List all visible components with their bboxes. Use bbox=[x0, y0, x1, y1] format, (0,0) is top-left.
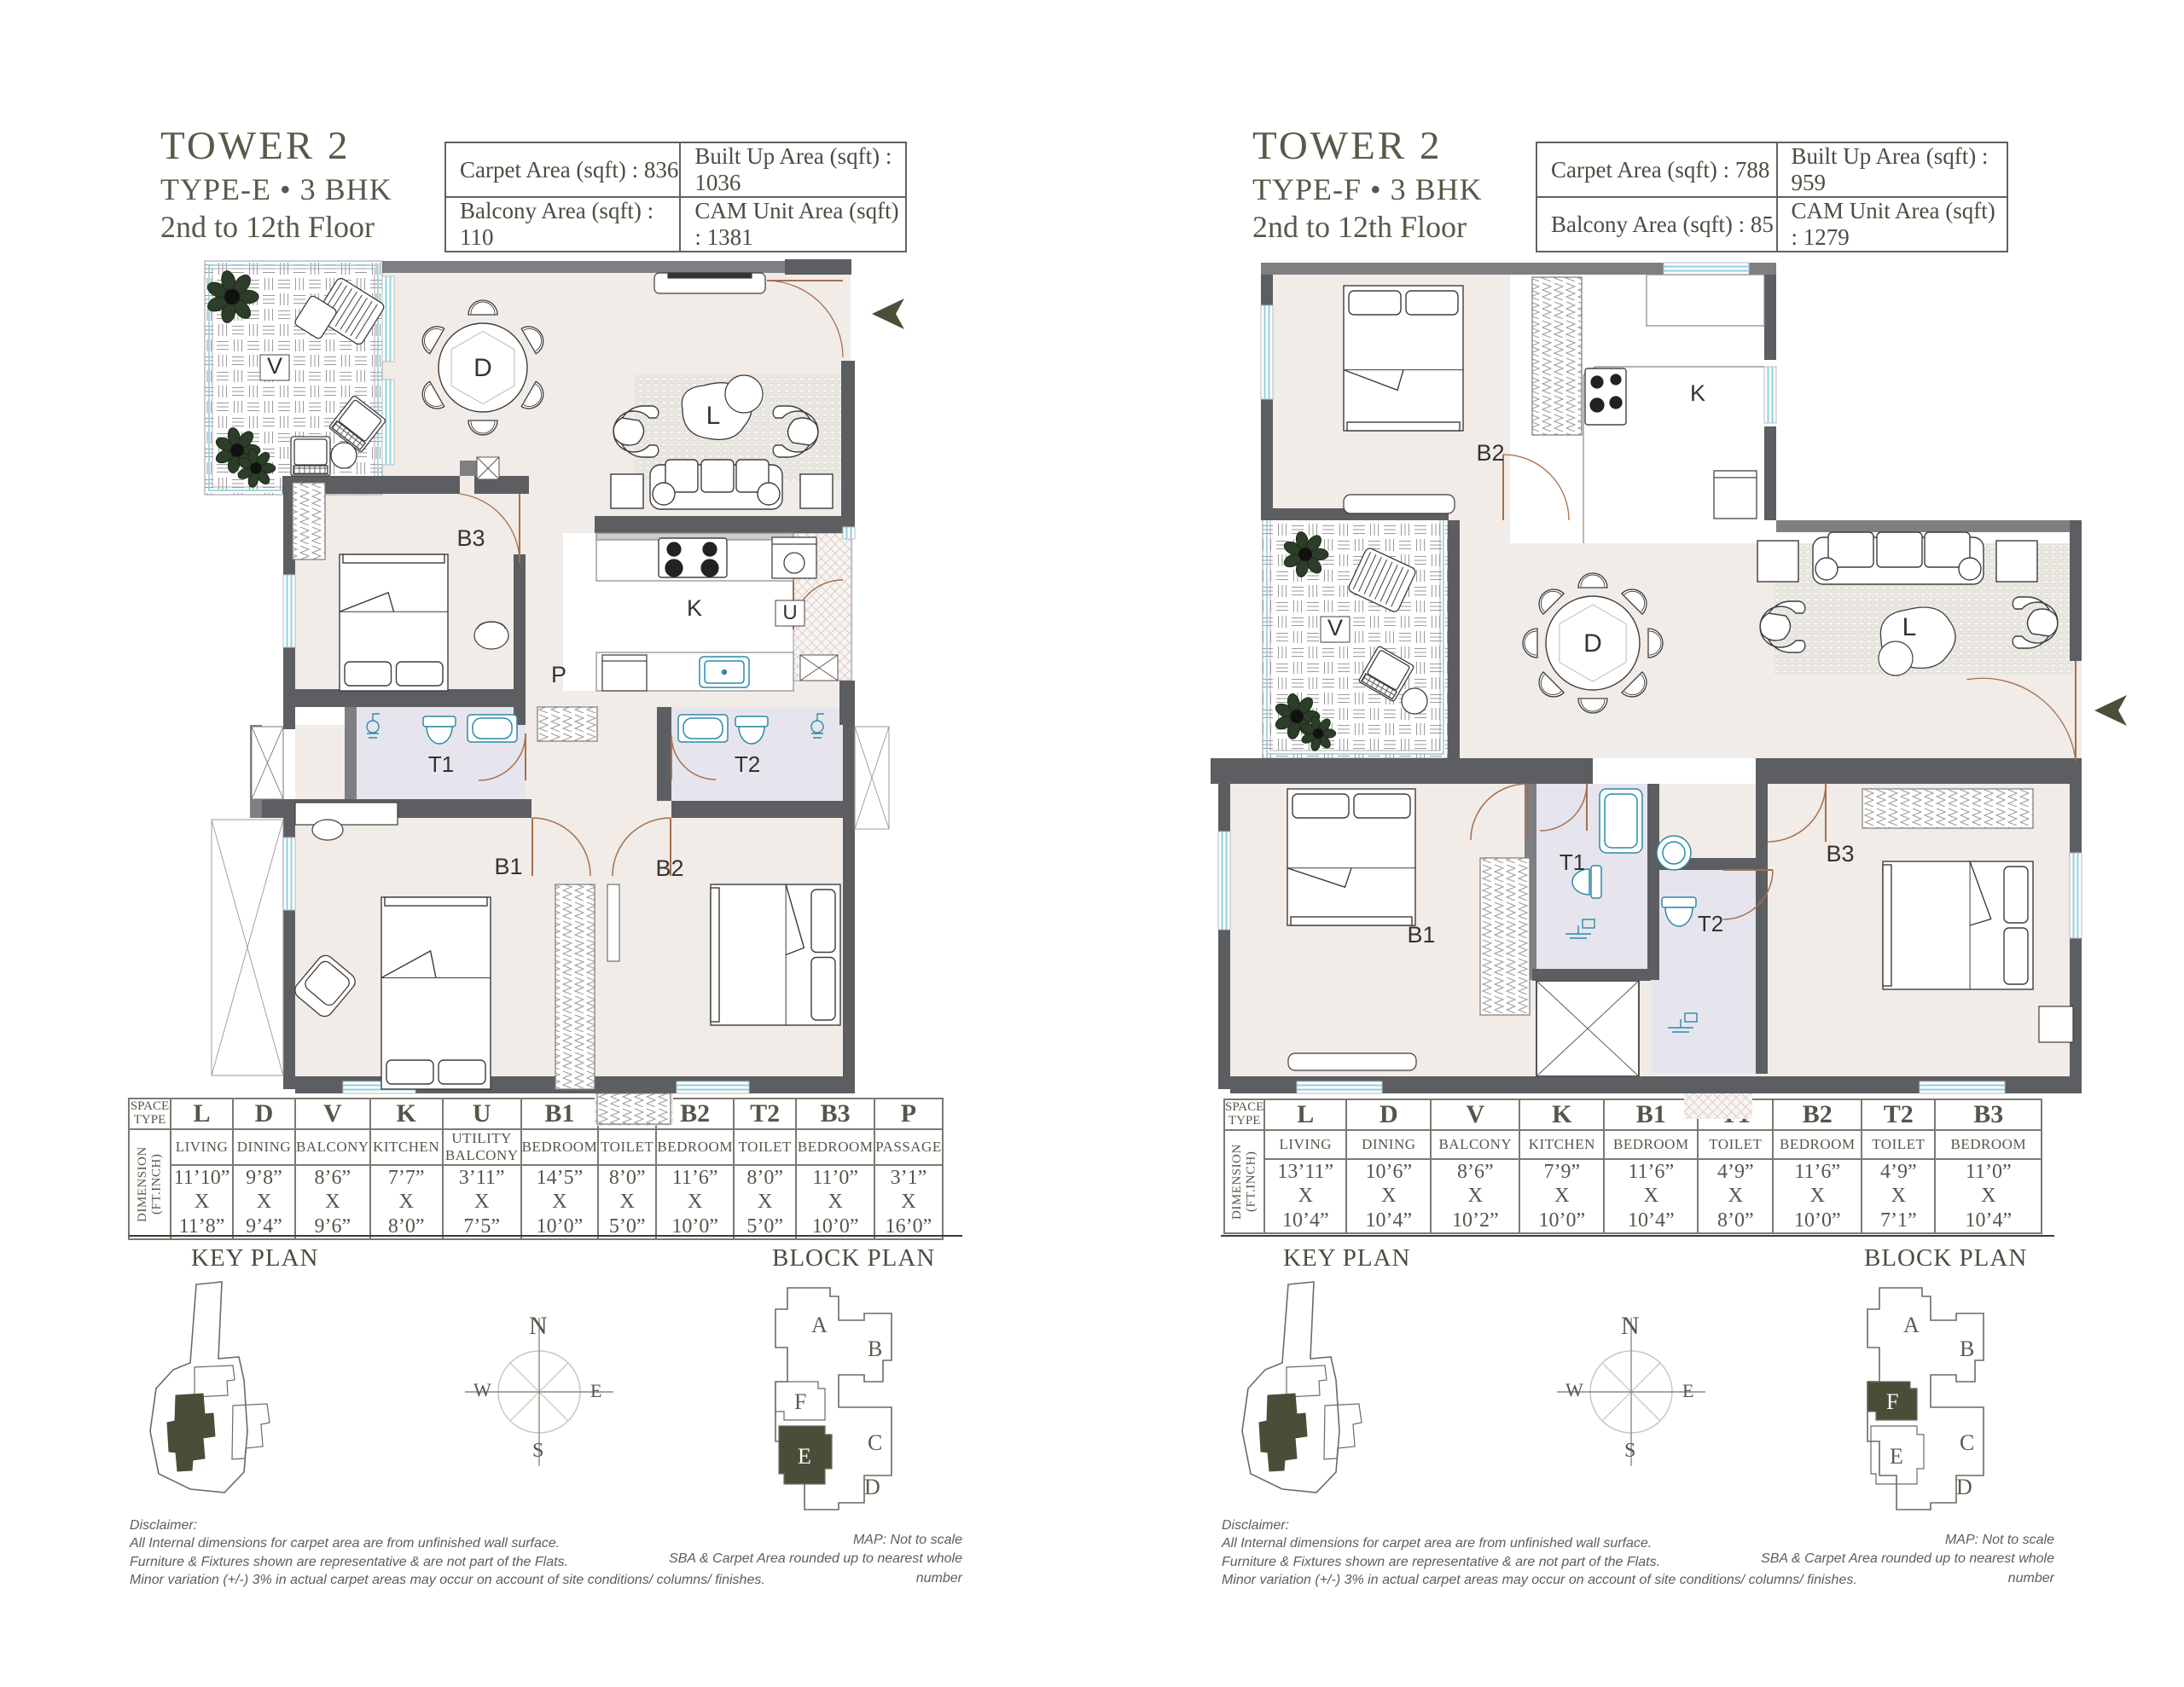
svg-text:B1: B1 bbox=[494, 854, 522, 879]
svg-text:K: K bbox=[687, 595, 702, 621]
svg-text:V: V bbox=[267, 353, 282, 379]
svg-text:D: D bbox=[1583, 629, 1602, 658]
svg-text:T2: T2 bbox=[735, 751, 760, 777]
svg-text:B2: B2 bbox=[655, 855, 683, 881]
svg-text:V: V bbox=[1327, 615, 1343, 641]
svg-text:T1: T1 bbox=[1560, 849, 1585, 875]
svg-text:L: L bbox=[1902, 613, 1917, 641]
svg-text:T2: T2 bbox=[1698, 911, 1723, 936]
svg-text:K: K bbox=[1690, 380, 1705, 406]
svg-text:P: P bbox=[551, 662, 566, 687]
svg-text:B1: B1 bbox=[1407, 922, 1435, 948]
svg-text:B3: B3 bbox=[456, 525, 485, 551]
svg-text:B3: B3 bbox=[1826, 841, 1854, 867]
svg-text:U: U bbox=[782, 601, 797, 624]
svg-text:D: D bbox=[473, 354, 492, 382]
svg-text:B2: B2 bbox=[1476, 440, 1504, 466]
svg-text:L: L bbox=[706, 402, 721, 430]
svg-text:T1: T1 bbox=[428, 751, 454, 777]
